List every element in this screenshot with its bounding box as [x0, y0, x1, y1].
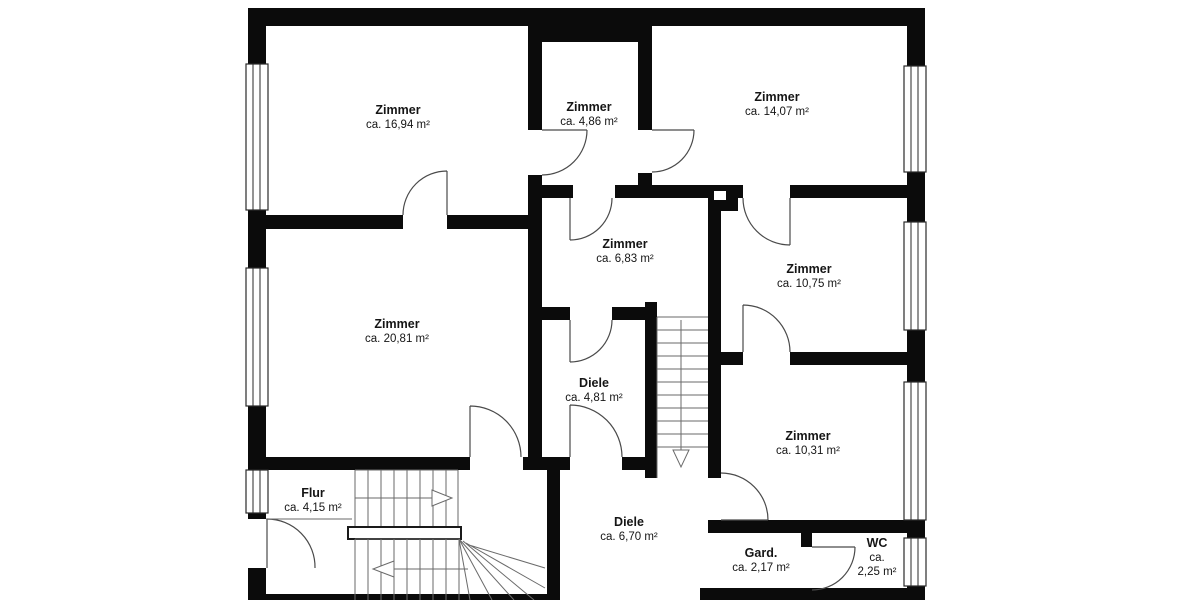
- stair-arrow-down: [673, 450, 689, 467]
- room-area: ca. 2,17 m²: [732, 561, 790, 575]
- stair-arrow-right: [432, 490, 452, 506]
- room-name: Flur: [284, 486, 342, 501]
- room-area: ca. 4,15 m²: [284, 501, 342, 515]
- floor-plan: Zimmer ca. 16,94 m² Zimmer ca. 4,86 m² Z…: [0, 0, 1200, 600]
- room-name: WC: [858, 536, 897, 551]
- room-label-zimmer-1031: Zimmer ca. 10,31 m²: [776, 429, 840, 458]
- room-label-zimmer-486: Zimmer ca. 4,86 m²: [560, 100, 618, 129]
- room-area: 2,25 m²: [858, 565, 897, 579]
- door-swing: [652, 130, 694, 172]
- room-area: ca. 14,07 m²: [745, 105, 809, 119]
- room-area: ca. 6,70 m²: [600, 530, 658, 544]
- window-left-3: [246, 470, 268, 513]
- staircase-center: [657, 317, 708, 478]
- room-label-diele-481: Diele ca. 4,81 m²: [565, 376, 623, 405]
- room-label-zimmer-1694: Zimmer ca. 16,94 m²: [366, 103, 430, 132]
- room-name: Zimmer: [365, 317, 429, 332]
- room-label-flur-415: Flur ca. 4,15 m²: [284, 486, 342, 515]
- room-label-zimmer-1075: Zimmer ca. 10,75 m²: [777, 262, 841, 291]
- room-area: ca. 20,81 m²: [365, 332, 429, 346]
- room-name: Zimmer: [777, 262, 841, 277]
- stair-arrow-left: [373, 561, 394, 577]
- door-swing: [743, 198, 790, 245]
- window-right-3: [904, 382, 926, 520]
- window-right-4: [904, 538, 926, 586]
- door-swing: [570, 198, 612, 240]
- room-label-diele-670: Diele ca. 6,70 m²: [600, 515, 658, 544]
- room-area: ca. 10,75 m²: [777, 277, 841, 291]
- room-name: Zimmer: [560, 100, 618, 115]
- room-name: Zimmer: [596, 237, 654, 252]
- door-swing: [403, 171, 447, 215]
- room-label-zimmer-683: Zimmer ca. 6,83 m²: [596, 237, 654, 266]
- room-name: Zimmer: [366, 103, 430, 118]
- room-label-wc-225: WC ca. 2,25 m²: [858, 536, 897, 579]
- room-area: ca. 4,86 m²: [560, 115, 618, 129]
- door-swing: [812, 547, 855, 590]
- window-right-1: [904, 66, 926, 172]
- window-left-1: [246, 64, 268, 210]
- chimney-block: [708, 185, 738, 211]
- floor-plan-drawing: [0, 0, 1200, 600]
- door-swing: [470, 406, 521, 457]
- door-swing: [743, 305, 790, 352]
- room-name: Zimmer: [776, 429, 840, 444]
- door-swing: [721, 473, 768, 520]
- room-area: ca. 4,81 m²: [565, 391, 623, 405]
- room-name: Diele: [565, 376, 623, 391]
- room-name: Gard.: [732, 546, 790, 561]
- room-name: Diele: [600, 515, 658, 530]
- room-name: Zimmer: [745, 90, 809, 105]
- window-right-2: [904, 222, 926, 330]
- room-area: ca. 10,31 m²: [776, 444, 840, 458]
- stair-handrail: [348, 527, 461, 539]
- room-label-zimmer-1407: Zimmer ca. 14,07 m²: [745, 90, 809, 119]
- room-label-zimmer-2081: Zimmer ca. 20,81 m²: [365, 317, 429, 346]
- door-swing: [542, 130, 587, 175]
- room-area: ca. 6,83 m²: [596, 252, 654, 266]
- door-swing: [570, 405, 622, 457]
- room-label-gard-217: Gard. ca. 2,17 m²: [732, 546, 790, 575]
- door-swing: [267, 519, 315, 568]
- walls: [248, 8, 925, 600]
- window-left-2: [246, 268, 268, 406]
- room-area: ca.: [858, 551, 897, 565]
- door-swing: [570, 320, 612, 362]
- room-area: ca. 16,94 m²: [366, 118, 430, 132]
